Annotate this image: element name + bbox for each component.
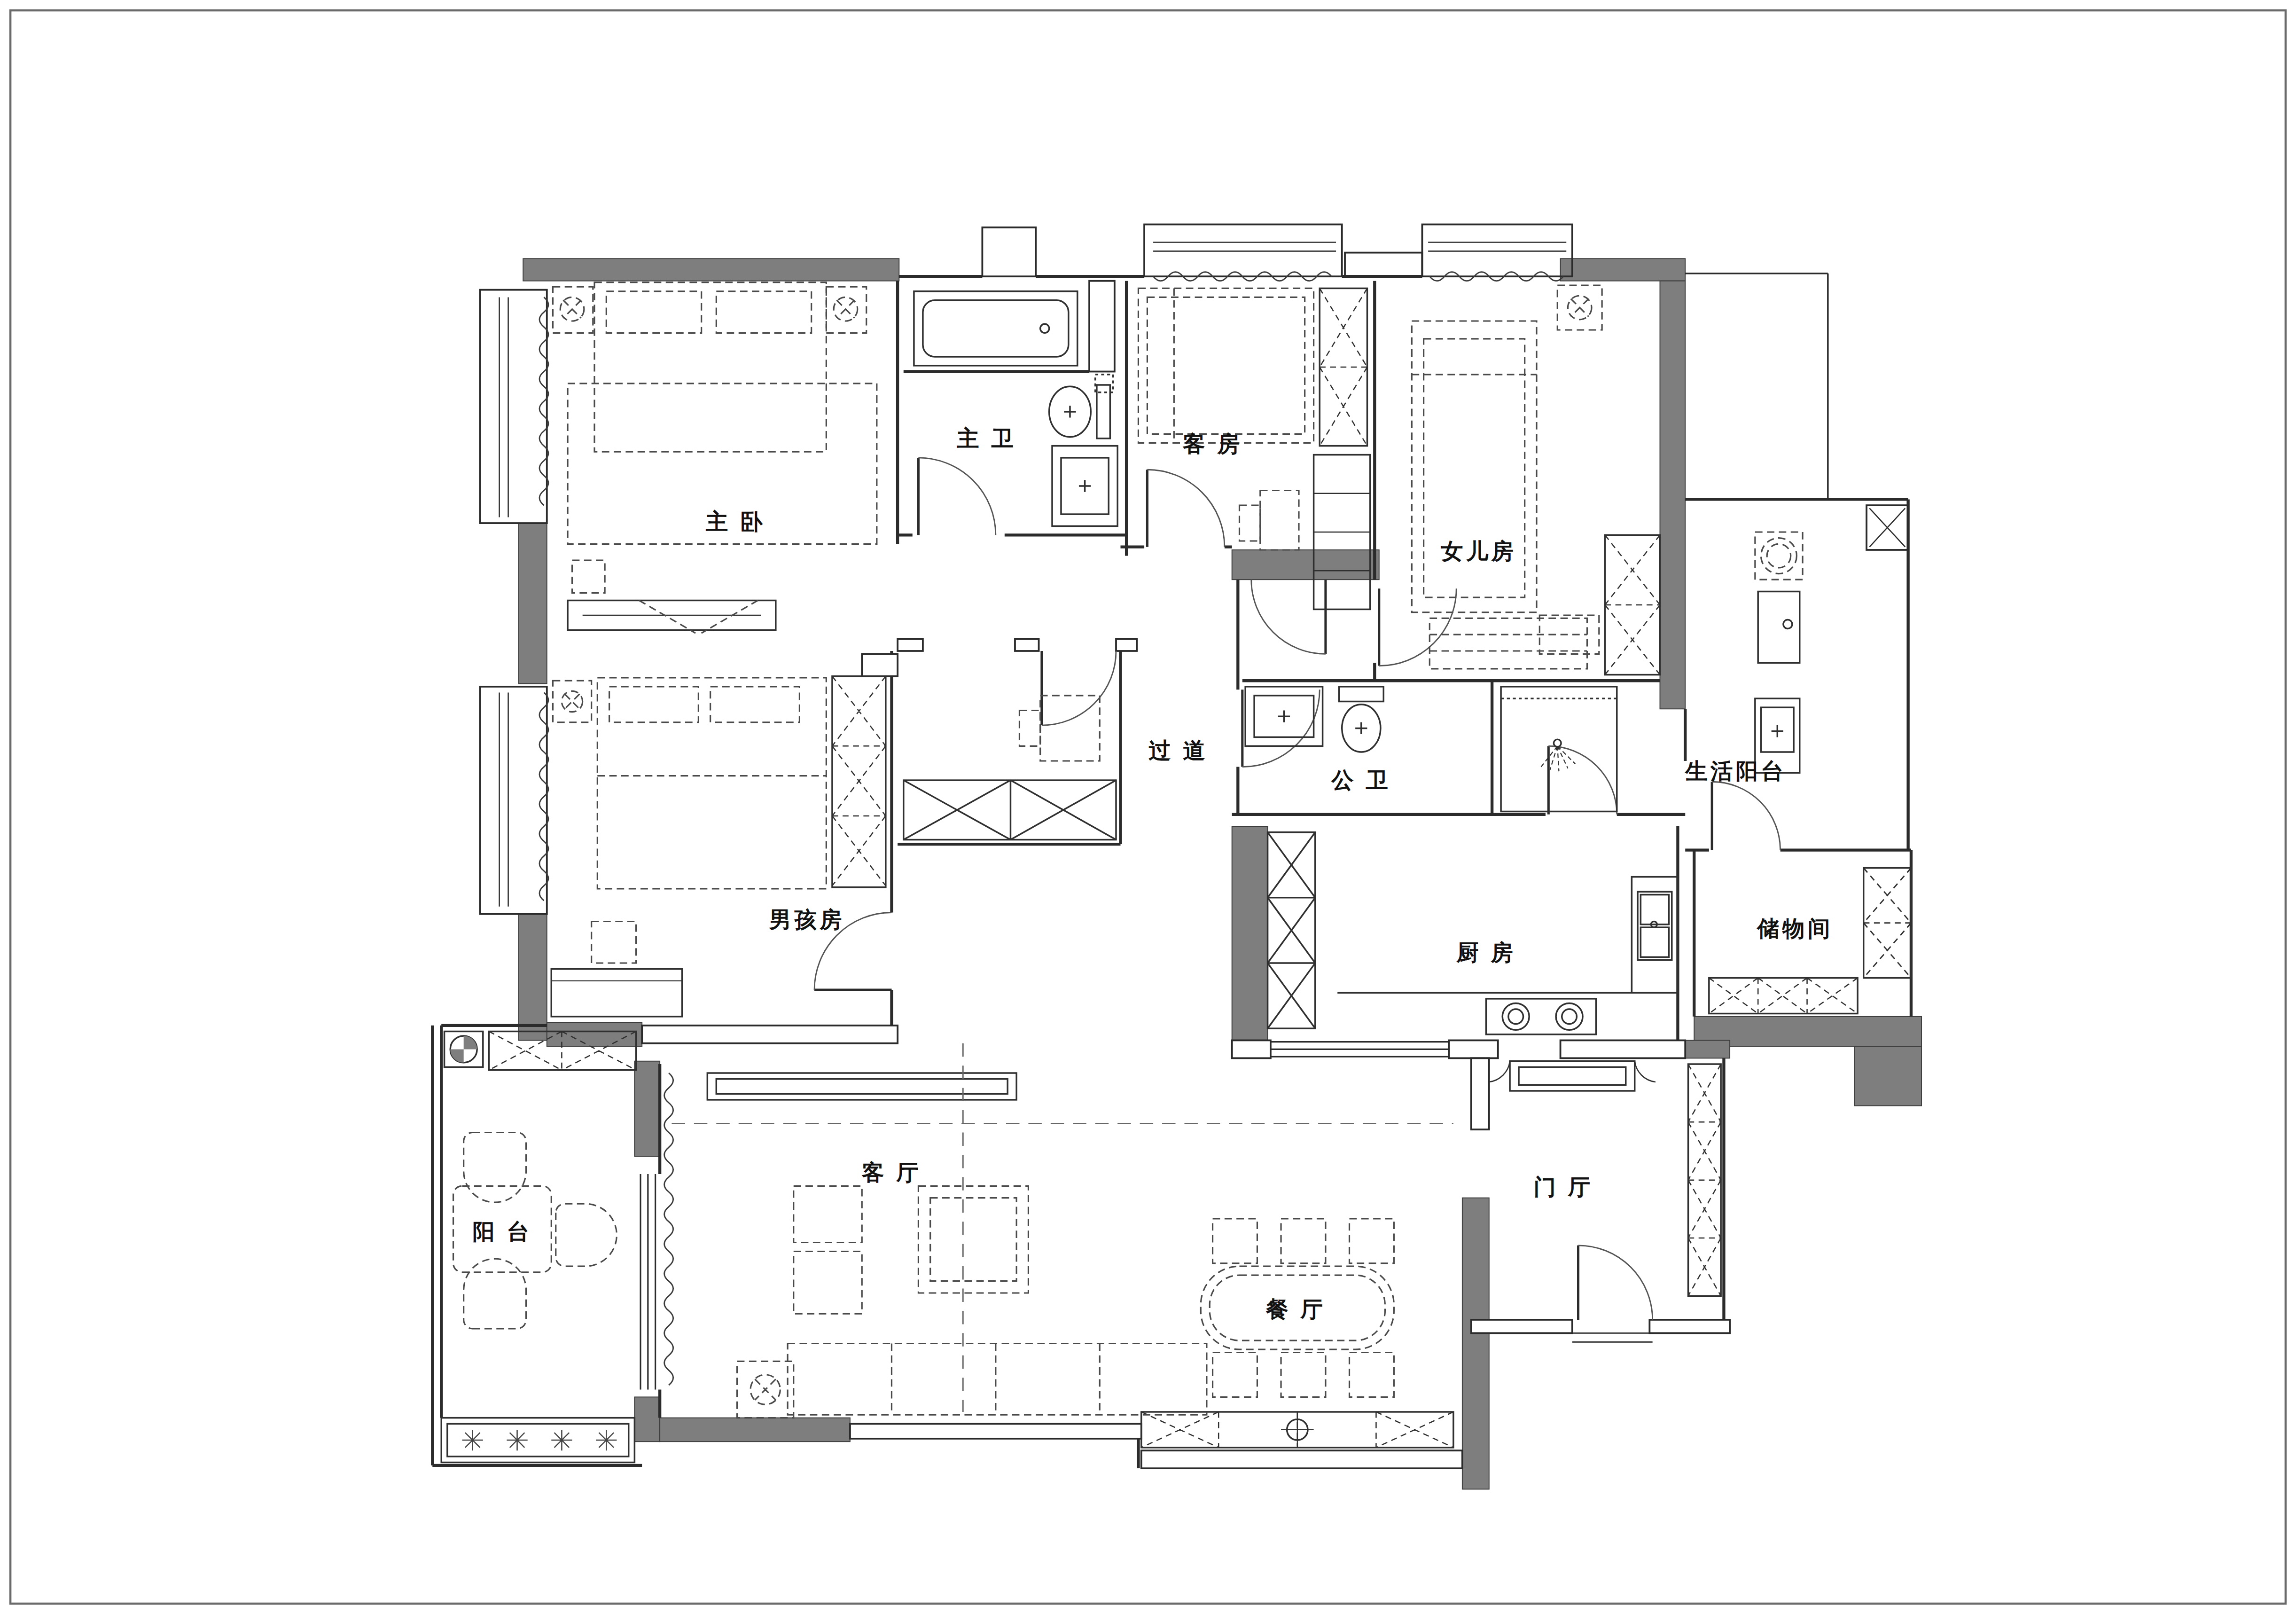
bay-window-master <box>480 290 547 523</box>
wall-storage-corner <box>1855 1046 1921 1105</box>
bay-windows <box>480 224 1908 914</box>
label-daughter-room: 女儿房 <box>1440 539 1516 564</box>
kitchen-sink <box>1638 892 1672 960</box>
storage-low-cabinet <box>1709 978 1858 1014</box>
label-master-bedroom: 主 卧 <box>705 509 765 534</box>
bed-daughter <box>1412 321 1537 612</box>
partition-walls <box>432 274 1911 1468</box>
closet-desk <box>1040 696 1100 761</box>
label-storage-room: 储物间 <box>1757 916 1833 941</box>
washing-machine <box>1755 532 1803 580</box>
bathtub <box>914 291 1078 366</box>
entry-threshold <box>1572 1333 1653 1342</box>
label-balcony: 阳 台 <box>472 1219 532 1244</box>
label-kitchen: 厨 房 <box>1456 940 1516 965</box>
wall-entry-north-east <box>1685 1040 1730 1058</box>
bay-window-daughter <box>1422 224 1572 276</box>
dresser-daughter <box>1429 618 1587 669</box>
shower-head <box>1554 739 1561 747</box>
armchair <box>794 1251 862 1314</box>
coffee-table <box>918 1186 1028 1293</box>
balcony-chair <box>556 1204 617 1266</box>
wall-top-right <box>1561 259 1686 281</box>
wall-living-west-upper <box>634 1061 660 1156</box>
duct-masterbath <box>1089 281 1115 372</box>
dining-chair <box>1213 1352 1257 1397</box>
sofa <box>788 1344 1207 1415</box>
kitchen-sliding-door <box>1271 1042 1449 1057</box>
bed-boy <box>597 678 826 889</box>
fixtures <box>441 288 1911 1462</box>
bathtub-inner <box>923 300 1069 357</box>
chair-guest <box>1239 505 1260 541</box>
nightstand <box>553 681 591 722</box>
bay-window-guest <box>1144 224 1342 276</box>
tv-console-living <box>707 1073 1016 1100</box>
balcony-chair <box>464 1259 526 1329</box>
wall-left-mid <box>519 523 547 684</box>
wall-living-south <box>660 1418 850 1442</box>
label-boy-room: 男孩房 <box>768 907 845 932</box>
boy-desk <box>551 969 682 1017</box>
wall-dining-east <box>1462 1198 1489 1489</box>
label-master-bath: 主 卫 <box>956 426 1016 451</box>
wall-right-daughter <box>1660 281 1685 709</box>
label-guest-room: 客 房 <box>1182 431 1242 456</box>
wall-left-lower <box>519 914 547 1041</box>
balcony-chair <box>464 1132 526 1202</box>
label-dining-room: 餐 厅 <box>1265 1297 1326 1322</box>
curtain-living-west <box>664 1073 673 1385</box>
doors <box>814 458 1781 1342</box>
shaft-above-masterbath <box>982 227 1036 276</box>
label-hallway: 过 道 <box>1148 738 1208 763</box>
wall-below-guest <box>1232 550 1379 580</box>
bay-window-boyroom <box>480 687 547 914</box>
bed-master <box>594 282 826 452</box>
armchair <box>794 1186 862 1242</box>
wall-kitchen-west <box>1232 826 1268 1040</box>
page-border <box>10 10 2286 1604</box>
door-arc-entry <box>1578 1246 1653 1320</box>
door-arc-balcony-lobby <box>1548 746 1617 814</box>
label-living-room: 客 厅 <box>861 1160 922 1185</box>
door-arc-guest <box>1147 470 1224 547</box>
dining-chair <box>1281 1352 1326 1397</box>
wall-living-west-lower <box>634 1397 660 1442</box>
chair-boy <box>592 921 636 963</box>
dining-chair <box>1350 1352 1394 1397</box>
wall-between-bays <box>1345 253 1422 277</box>
room-labels: 主 卧 主 卫 客 房 女儿房 过 道 公 卫 生活阳台 男孩房 厨 房 储物间… <box>472 426 1833 1322</box>
label-service-balcony: 生活阳台 <box>1684 759 1786 783</box>
door-arc-daughter <box>1379 588 1456 666</box>
entry-bench <box>1510 1061 1635 1091</box>
stool-master <box>572 560 605 593</box>
dining-chair <box>1213 1219 1257 1263</box>
balcony-sliding-door <box>640 1174 656 1389</box>
label-entry-hall: 门 厅 <box>1533 1175 1593 1199</box>
label-public-bath: 公 卫 <box>1331 768 1391 792</box>
dining-chair <box>1281 1219 1326 1263</box>
door-arc-master-bath <box>918 458 995 535</box>
dining-chair <box>1350 1219 1394 1263</box>
door-arc-suite <box>1042 651 1116 725</box>
wall-top-master <box>523 259 899 281</box>
door-arc-storage <box>1712 782 1780 850</box>
floor-plan-drawing: 主 卧 主 卫 客 房 女儿房 过 道 公 卫 生活阳台 男孩房 厨 房 储物间… <box>0 0 2296 1614</box>
planter-plants <box>462 1430 617 1450</box>
closet-chair <box>1019 710 1040 746</box>
floor-plan-page: 主 卧 主 卫 客 房 女儿房 过 道 公 卫 生活阳台 男孩房 厨 房 储物间… <box>0 0 2296 1614</box>
bed-guest <box>1138 288 1313 443</box>
water-heater <box>1758 592 1800 663</box>
desk-guest <box>1260 490 1299 549</box>
bathtub-drain <box>1040 324 1049 333</box>
curtain-lines <box>539 272 1563 1385</box>
toilet-tank-public <box>1339 687 1383 702</box>
